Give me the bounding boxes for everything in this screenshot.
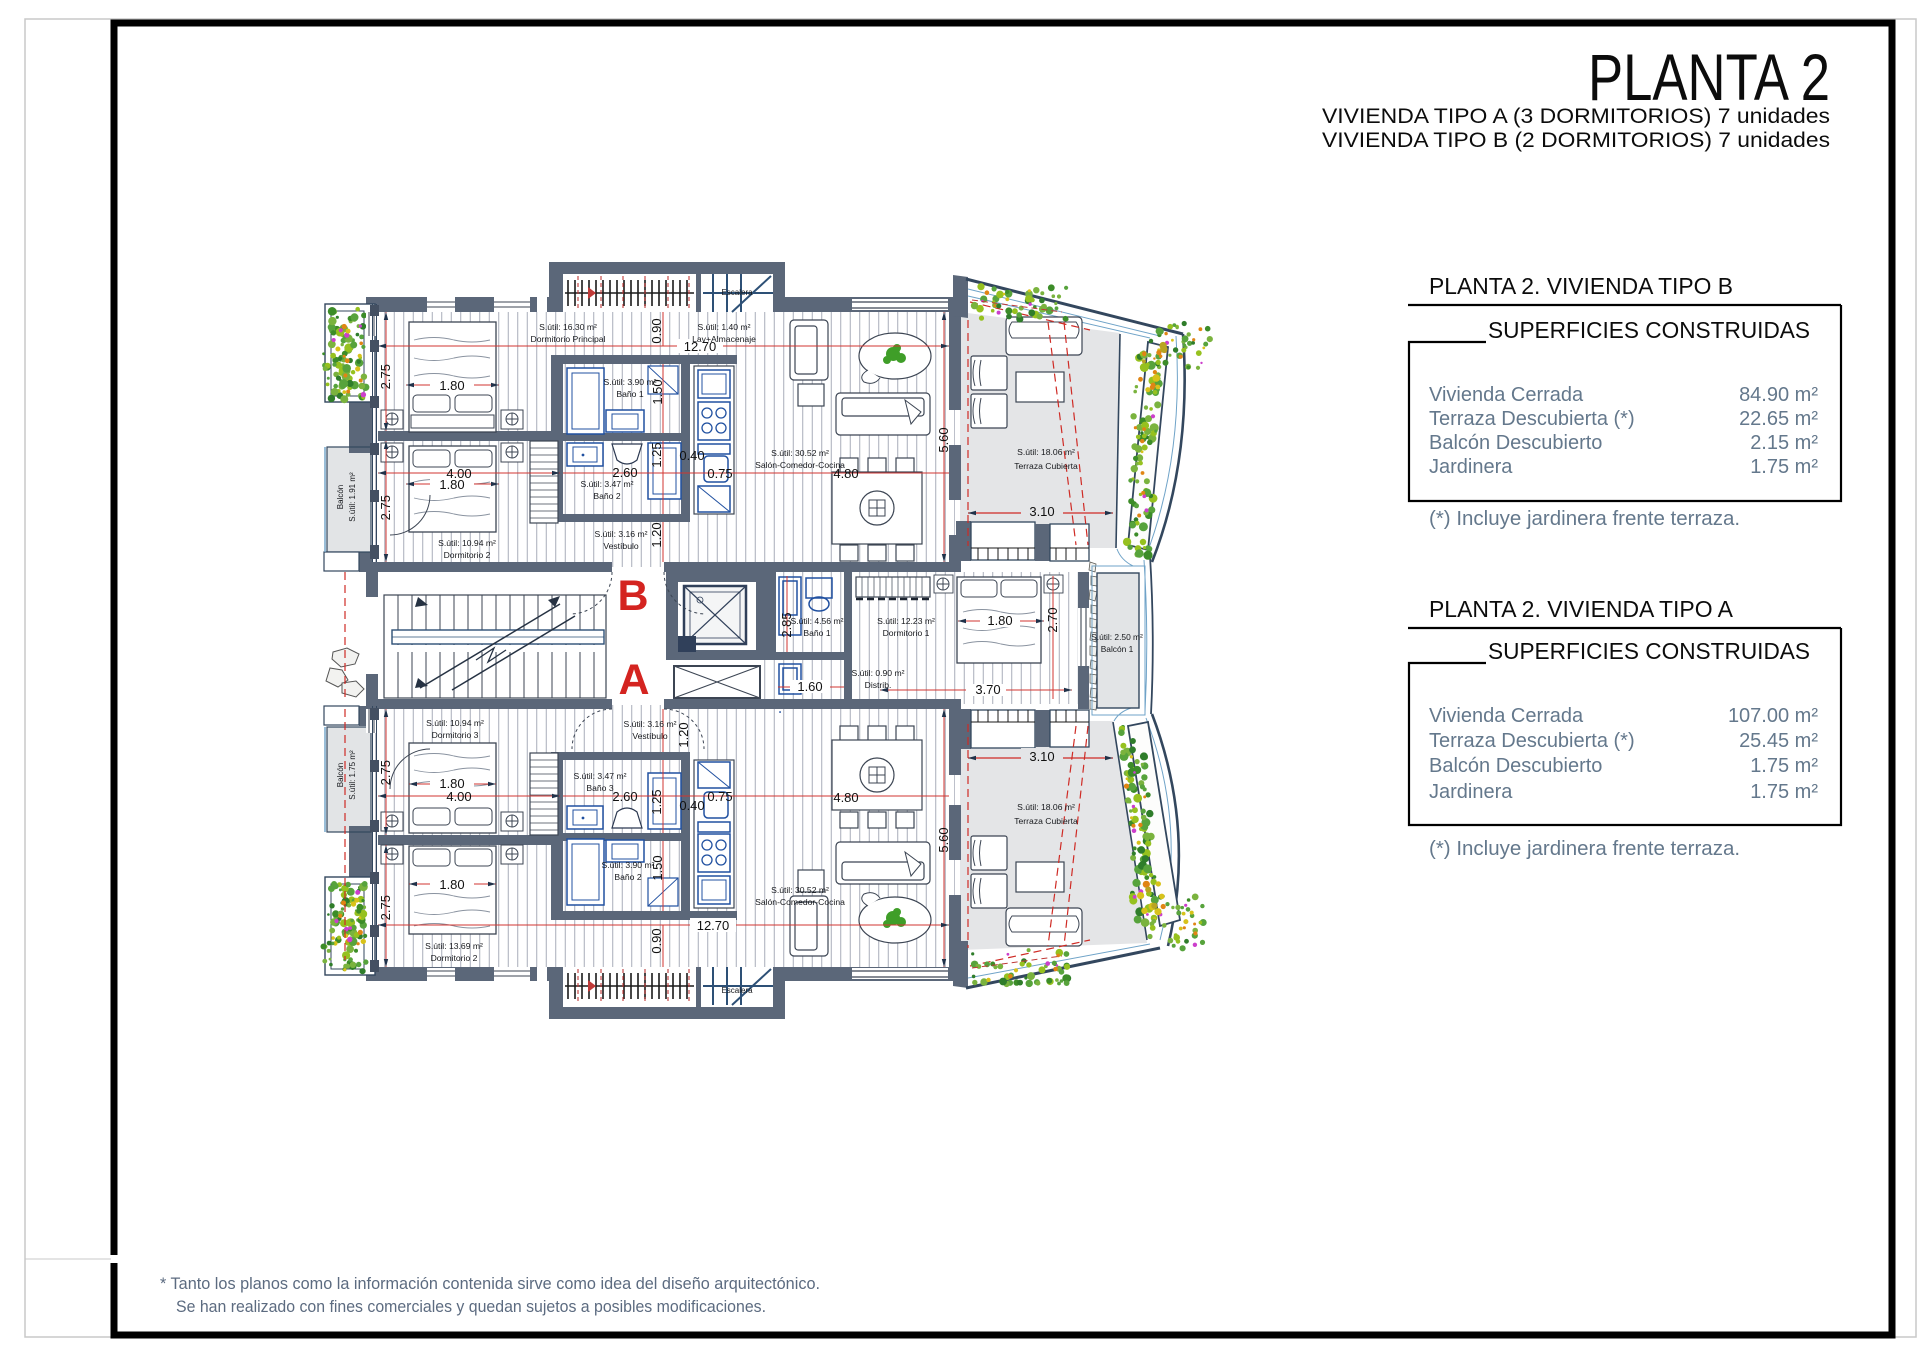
svg-text:2.60: 2.60	[612, 789, 637, 804]
svg-text:S.útil: 3.47 m²: S.útil: 3.47 m²	[580, 479, 633, 489]
svg-text:S.útil: 3.16 m²: S.útil: 3.16 m²	[623, 719, 676, 729]
svg-text:0.75: 0.75	[707, 789, 732, 804]
svg-text:3.70: 3.70	[975, 682, 1000, 697]
svg-text:S.útil: 3.16 m²: S.útil: 3.16 m²	[594, 529, 647, 539]
svg-text:1.80: 1.80	[439, 378, 464, 393]
svg-text:22.65 m²: 22.65 m²	[1739, 408, 1818, 430]
svg-text:1.75 m²: 1.75 m²	[1750, 456, 1818, 478]
svg-text:1.75 m²: 1.75 m²	[1750, 755, 1818, 777]
svg-text:S.útil: 30.52 m²: S.útil: 30.52 m²	[771, 885, 829, 895]
svg-text:S.útil: 12.23 m²: S.útil: 12.23 m²	[877, 616, 935, 626]
svg-text:2.70: 2.70	[1045, 607, 1060, 632]
svg-text:25.45 m²: 25.45 m²	[1739, 730, 1818, 752]
svg-text:S.útil: 4.56 m²: S.útil: 4.56 m²	[790, 616, 843, 626]
svg-text:Baño 2: Baño 2	[614, 872, 641, 882]
svg-text:S.útil: 18.06 m²: S.útil: 18.06 m²	[1017, 802, 1075, 812]
svg-text:PLANTA 2. VIVIENDA TIPO A: PLANTA 2. VIVIENDA TIPO A	[1429, 596, 1734, 622]
svg-text:Balcón Descubierto: Balcón Descubierto	[1429, 432, 1602, 454]
svg-text:0.40: 0.40	[679, 448, 704, 463]
svg-text:Jardinera: Jardinera	[1429, 781, 1513, 803]
svg-text:PLANTA 2: PLANTA 2	[1588, 40, 1830, 114]
svg-text:Lav+Almacenaje: Lav+Almacenaje	[692, 334, 756, 344]
svg-text:3.10: 3.10	[1029, 504, 1054, 519]
svg-text:2.75: 2.75	[378, 495, 393, 520]
svg-text:4.80: 4.80	[833, 790, 858, 805]
svg-text:* Tanto los planos como la inf: * Tanto los planos como la información c…	[160, 1275, 820, 1293]
svg-text:Baño 1: Baño 1	[803, 628, 830, 638]
svg-text:12.70: 12.70	[697, 918, 730, 933]
svg-text:PLANTA 2. VIVIENDA TIPO B: PLANTA 2. VIVIENDA TIPO B	[1429, 273, 1733, 299]
svg-text:Baño 3: Baño 3	[586, 783, 613, 793]
svg-text:Baño 2: Baño 2	[593, 491, 620, 501]
svg-text:Vivienda Cerrada: Vivienda Cerrada	[1429, 705, 1584, 727]
svg-text:5.60: 5.60	[936, 827, 951, 852]
svg-text:Dormitorio 3: Dormitorio 3	[432, 730, 479, 740]
svg-text:1.80: 1.80	[439, 776, 464, 791]
svg-text:0.40: 0.40	[679, 798, 704, 813]
svg-text:2.75: 2.75	[378, 364, 393, 389]
svg-text:Escalera: Escalera	[721, 288, 753, 297]
svg-text:84.90 m²: 84.90 m²	[1739, 384, 1818, 406]
svg-text:Vivienda Cerrada: Vivienda Cerrada	[1429, 384, 1584, 406]
svg-text:Salón-Comedor-Cocina: Salón-Comedor-Cocina	[755, 460, 845, 470]
svg-text:S.útil: 1.40 m²: S.útil: 1.40 m²	[697, 322, 750, 332]
svg-text:S.útil: 1.75 m²: S.útil: 1.75 m²	[348, 750, 357, 800]
svg-text:5.60: 5.60	[936, 427, 951, 452]
svg-text:Dormitorio Principal: Dormitorio Principal	[531, 334, 606, 344]
svg-text:Terraza Cubierta: Terraza Cubierta	[1014, 461, 1078, 471]
svg-text:1.60: 1.60	[797, 679, 822, 694]
svg-text:Balcón: Balcón	[336, 763, 345, 787]
svg-text:SUPERFICIES CONSTRUIDAS: SUPERFICIES CONSTRUIDAS	[1488, 317, 1810, 343]
svg-text:Vestíbulo: Vestíbulo	[603, 541, 639, 551]
svg-text:Balcón: Balcón	[336, 485, 345, 509]
svg-text:0.75: 0.75	[707, 466, 732, 481]
svg-text:S.útil: 0.90 m²: S.útil: 0.90 m²	[851, 668, 904, 678]
svg-text:Terraza Descubierta (*): Terraza Descubierta (*)	[1429, 730, 1635, 752]
svg-text:S.útil: 10.94 m²: S.útil: 10.94 m²	[426, 718, 484, 728]
svg-text:1.80: 1.80	[439, 877, 464, 892]
svg-text:4.00: 4.00	[446, 789, 471, 804]
svg-text:Balcón 1: Balcón 1	[1101, 644, 1134, 654]
svg-text:Balcón Descubierto: Balcón Descubierto	[1429, 755, 1602, 777]
svg-text:VIVIENDA TIPO A (3 DORMITORIOS: VIVIENDA TIPO A (3 DORMITORIOS) 7 unidad…	[1322, 104, 1830, 128]
svg-text:Jardinera: Jardinera	[1429, 456, 1513, 478]
svg-text:Dormitorio 2: Dormitorio 2	[431, 953, 478, 963]
svg-text:S.útil: 1.91 m²: S.útil: 1.91 m²	[348, 472, 357, 522]
svg-text:S.útil: 13.69 m²: S.útil: 13.69 m²	[425, 941, 483, 951]
svg-text:S.útil: 2.50 m²: S.útil: 2.50 m²	[1091, 632, 1143, 642]
svg-text:S.útil: 18.06 m²: S.útil: 18.06 m²	[1017, 447, 1075, 457]
svg-text:Escalera: Escalera	[721, 986, 753, 995]
svg-text:1.75 m²: 1.75 m²	[1750, 781, 1818, 803]
svg-text:Dormitorio 2: Dormitorio 2	[444, 550, 491, 560]
svg-text:S.útil: 30.52 m²: S.útil: 30.52 m²	[771, 448, 829, 458]
svg-text:1.25: 1.25	[649, 789, 664, 814]
svg-text:(*) Incluye jardinera frente t: (*) Incluye jardinera frente terraza.	[1429, 507, 1740, 530]
svg-text:1.25: 1.25	[649, 442, 664, 467]
svg-text:Terraza Cubierta: Terraza Cubierta	[1014, 816, 1078, 826]
svg-text:2.60: 2.60	[612, 465, 637, 480]
svg-text:Salón-Comedor-Cocina: Salón-Comedor-Cocina	[755, 897, 845, 907]
svg-text:B: B	[617, 572, 648, 620]
svg-text:0.90: 0.90	[649, 928, 664, 953]
svg-text:1.80: 1.80	[987, 613, 1012, 628]
svg-text:107.00 m²: 107.00 m²	[1728, 705, 1818, 727]
svg-text:Se han realizado con fines com: Se han realizado con fines comerciales y…	[176, 1298, 766, 1316]
svg-text:2.75: 2.75	[378, 895, 393, 920]
svg-text:(*) Incluye jardinera frente t: (*) Incluye jardinera frente terraza.	[1429, 837, 1740, 860]
svg-text:Distrib.: Distrib.	[865, 680, 892, 690]
svg-text:Terraza Descubierta (*): Terraza Descubierta (*)	[1429, 408, 1635, 430]
svg-text:S.útil: 3.47 m²: S.útil: 3.47 m²	[573, 771, 626, 781]
svg-text:S.útil: 3.90 m²: S.útil: 3.90 m²	[601, 860, 654, 870]
svg-text:Dormitorio 1: Dormitorio 1	[883, 628, 930, 638]
svg-text:1.20: 1.20	[649, 522, 664, 547]
svg-text:A: A	[618, 656, 649, 704]
svg-text:2.15 m²: 2.15 m²	[1750, 432, 1818, 454]
svg-text:Vestíbulo: Vestíbulo	[632, 731, 668, 741]
svg-text:VIVIENDA TIPO B (2 DORMITORIOS: VIVIENDA TIPO B (2 DORMITORIOS) 7 unidad…	[1322, 128, 1830, 152]
svg-text:1.80: 1.80	[439, 477, 464, 492]
svg-text:1.20: 1.20	[676, 722, 691, 747]
svg-text:3.10: 3.10	[1029, 749, 1054, 764]
svg-text:Baño 1: Baño 1	[616, 389, 643, 399]
svg-text:S.útil: 3.90 m²: S.útil: 3.90 m²	[603, 377, 656, 387]
svg-text:S.útil: 10.94 m²: S.útil: 10.94 m²	[438, 538, 496, 548]
svg-text:SUPERFICIES CONSTRUIDAS: SUPERFICIES CONSTRUIDAS	[1488, 638, 1810, 664]
svg-text:S.útil: 16.30 m²: S.útil: 16.30 m²	[539, 322, 597, 332]
svg-text:0.90: 0.90	[649, 318, 664, 343]
